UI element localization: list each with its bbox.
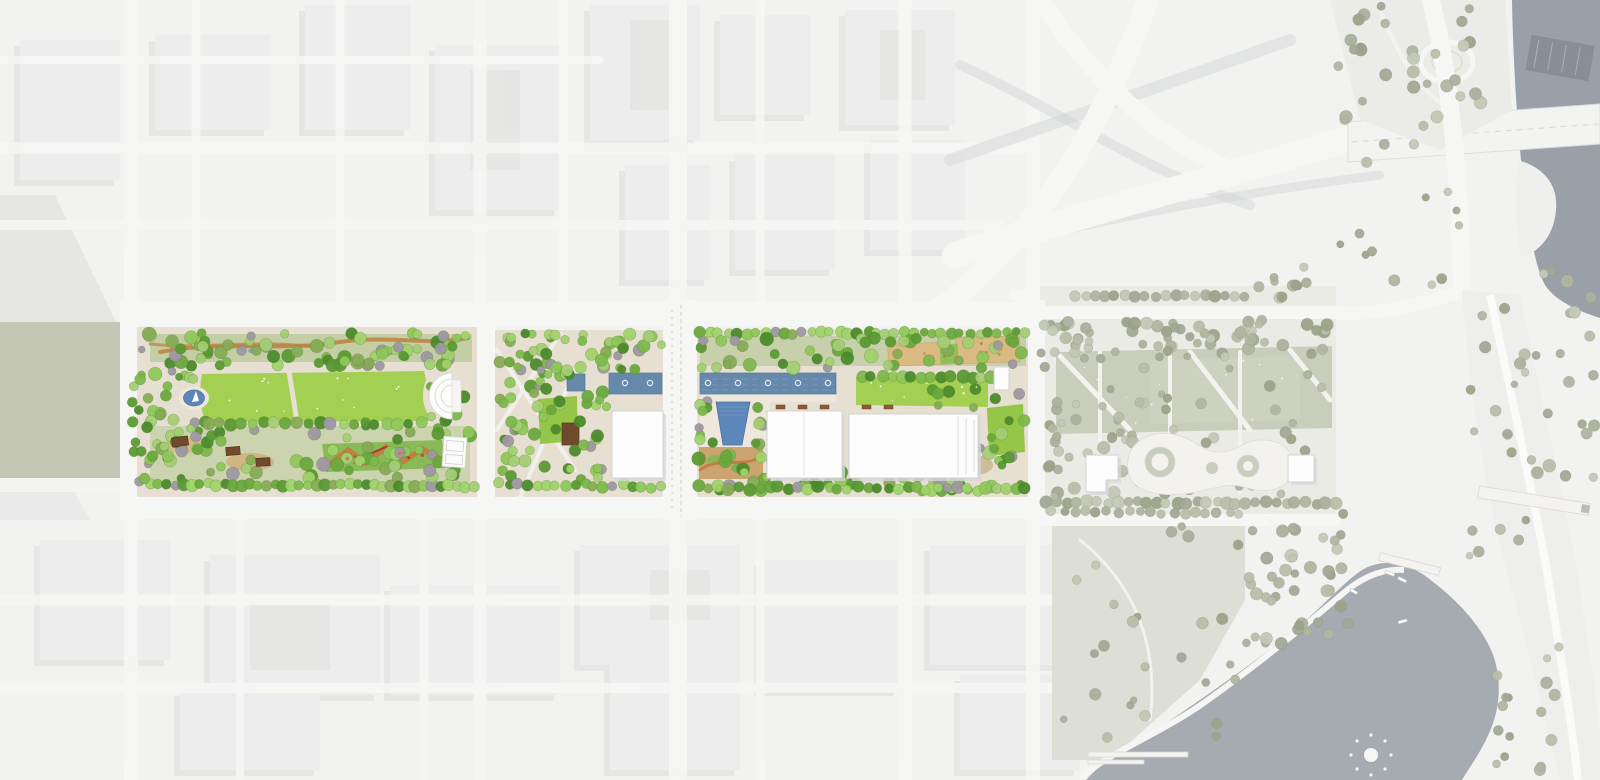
tree — [452, 334, 461, 343]
tree-muted — [1581, 428, 1592, 439]
tree-muted — [1260, 632, 1272, 644]
tree-muted — [1048, 325, 1058, 335]
tree-muted — [1235, 327, 1247, 339]
tree-muted — [1407, 52, 1419, 64]
tree-muted — [1231, 675, 1240, 684]
aerial-plan-stage — [0, 0, 1600, 780]
tree-muted — [1154, 341, 1163, 350]
tree — [405, 427, 415, 437]
play-equipment — [956, 357, 959, 360]
tree — [1015, 347, 1028, 360]
lawn-speck — [926, 383, 927, 384]
tree — [554, 396, 566, 408]
tree-muted — [1466, 552, 1473, 559]
tree-muted — [1260, 496, 1272, 508]
tree-muted — [1367, 247, 1377, 257]
tree-muted — [1080, 354, 1088, 362]
tree — [539, 412, 548, 421]
tree — [127, 397, 137, 407]
tree-muted — [1270, 405, 1280, 415]
tree-muted — [1160, 499, 1170, 509]
lawn-speck — [903, 396, 905, 398]
tree-muted — [1060, 716, 1067, 723]
tree — [292, 346, 303, 357]
tree — [499, 398, 509, 408]
lawn-speck — [1252, 419, 1254, 421]
tree — [175, 344, 186, 355]
tree-muted — [1431, 111, 1443, 123]
tree-muted — [1136, 507, 1144, 515]
tree-muted — [1098, 402, 1106, 410]
hall-east-2 — [849, 414, 978, 478]
tree — [852, 481, 864, 493]
lawn-speck — [263, 378, 265, 380]
tree-muted — [1145, 506, 1156, 517]
west-field — [0, 322, 128, 492]
tree-muted — [1513, 535, 1523, 545]
tree — [643, 330, 655, 342]
tree-muted — [1139, 340, 1147, 348]
tree-muted — [1453, 207, 1461, 215]
tree-muted — [1261, 552, 1273, 564]
tree — [539, 461, 551, 473]
lawn-speck — [1097, 379, 1099, 381]
play-equipment — [923, 352, 925, 354]
tree-muted — [1588, 370, 1598, 380]
tree-muted — [1560, 470, 1571, 481]
tree — [575, 361, 587, 373]
tree-muted — [1522, 516, 1530, 524]
tree-muted — [1531, 467, 1543, 479]
tree-muted — [1128, 317, 1140, 329]
tree-muted — [1082, 292, 1091, 301]
tree-muted — [1294, 621, 1304, 631]
tree — [160, 390, 171, 401]
tree-muted — [1130, 697, 1137, 704]
tree — [893, 349, 903, 359]
tree — [920, 486, 930, 496]
tree — [377, 348, 389, 360]
tree-muted — [1107, 433, 1117, 443]
garden-accent — [402, 452, 404, 454]
tree-muted — [1061, 507, 1069, 515]
tree — [168, 414, 179, 425]
tree-muted — [1291, 570, 1299, 578]
tree-muted — [1126, 507, 1135, 516]
tree-muted — [1114, 412, 1125, 423]
tree — [595, 354, 607, 366]
tree — [699, 336, 708, 345]
tree-muted — [1273, 577, 1284, 588]
tree — [139, 473, 150, 484]
tree-muted — [1338, 509, 1348, 519]
tree — [300, 457, 314, 471]
tree — [899, 336, 910, 347]
tree — [215, 361, 225, 371]
hall-center — [612, 411, 663, 478]
tree — [324, 417, 337, 430]
tree — [574, 416, 586, 428]
tree — [163, 382, 172, 391]
tree-muted — [1300, 263, 1309, 272]
tree-muted — [1361, 157, 1372, 168]
tree — [279, 417, 291, 429]
tree-muted — [1183, 530, 1195, 542]
tree-muted — [1092, 561, 1101, 570]
tree-muted — [1334, 62, 1343, 71]
tree-muted — [1495, 524, 1505, 534]
tree — [160, 442, 169, 451]
tree-muted — [1141, 662, 1150, 671]
tree — [343, 434, 351, 442]
tree-muted — [1096, 354, 1105, 363]
tree — [461, 331, 470, 340]
tree — [1018, 415, 1030, 427]
tree-muted — [1465, 4, 1474, 13]
lawn-speck — [283, 411, 284, 412]
tree-muted — [1543, 459, 1556, 472]
tree — [168, 367, 176, 375]
tree — [987, 433, 995, 441]
tree — [502, 435, 514, 447]
tree-muted — [1157, 510, 1166, 519]
tree-muted — [1201, 438, 1211, 448]
tree — [446, 469, 458, 481]
tree — [416, 417, 427, 428]
tree — [618, 365, 627, 374]
tree-muted — [1180, 291, 1189, 300]
tree — [525, 446, 534, 455]
tree-muted — [1353, 14, 1365, 26]
tree-muted — [1532, 351, 1540, 359]
tree — [246, 455, 256, 465]
tree — [393, 342, 403, 352]
tree — [744, 484, 757, 497]
tree — [280, 329, 289, 338]
tree-muted — [1226, 661, 1234, 669]
tree — [136, 446, 146, 456]
tree — [905, 371, 916, 382]
tree — [161, 479, 171, 489]
lawn-speck — [870, 382, 872, 384]
tree — [369, 420, 379, 430]
tree — [1020, 328, 1030, 338]
tree-muted — [1277, 292, 1287, 302]
tree — [508, 446, 518, 456]
tree-muted — [1277, 490, 1285, 498]
tree — [976, 363, 987, 374]
tree — [529, 346, 538, 355]
tree-muted — [1073, 334, 1083, 344]
tree — [824, 327, 833, 336]
tree — [364, 358, 375, 369]
tree — [331, 458, 344, 471]
tree — [196, 354, 206, 364]
tree-muted — [1250, 588, 1262, 600]
tree-muted — [1072, 575, 1081, 584]
tree-muted — [1317, 344, 1328, 355]
lawn-speck — [317, 408, 319, 410]
tree — [1001, 483, 1012, 494]
tree — [494, 356, 506, 368]
tree — [442, 359, 452, 369]
tree-muted — [1280, 427, 1292, 439]
tree — [235, 418, 246, 429]
tree — [990, 444, 999, 453]
tree-muted — [1044, 460, 1055, 471]
tree — [191, 431, 202, 442]
tree — [522, 480, 533, 491]
tree-muted — [1536, 707, 1546, 717]
tree — [1009, 337, 1019, 347]
tree — [516, 350, 525, 359]
play-equipment — [999, 347, 1003, 351]
garden-accent — [346, 457, 349, 460]
tree — [716, 335, 727, 346]
garden-accent — [398, 452, 401, 455]
north-street — [128, 302, 1035, 326]
tree — [566, 465, 574, 473]
tree — [751, 328, 760, 337]
tree — [920, 328, 928, 336]
tree — [514, 363, 522, 371]
tree-muted — [1419, 121, 1429, 131]
tree — [693, 479, 705, 491]
play-equipment — [931, 355, 934, 358]
tree — [943, 386, 955, 398]
tree-muted — [1114, 508, 1124, 518]
tree — [944, 370, 956, 382]
tree-muted — [1377, 2, 1385, 10]
tree — [197, 341, 208, 352]
tree — [969, 404, 977, 412]
tree-muted — [1534, 764, 1546, 776]
tree-muted — [1170, 508, 1180, 518]
tree-muted — [1549, 689, 1561, 701]
tree — [551, 424, 561, 434]
tree-muted — [1112, 496, 1125, 509]
tree — [186, 424, 194, 432]
tree — [252, 481, 262, 491]
tree-muted — [1455, 222, 1463, 230]
tree-muted — [1336, 563, 1347, 574]
tree — [587, 481, 597, 491]
tree — [424, 464, 436, 476]
tree — [148, 367, 162, 381]
tree-muted — [1303, 370, 1312, 379]
tree — [153, 479, 163, 489]
tree-muted — [1469, 88, 1481, 100]
tree-muted — [1260, 338, 1268, 346]
tree — [595, 396, 604, 405]
tree-muted — [1456, 92, 1466, 102]
tree-muted — [1407, 81, 1420, 94]
tree-muted — [1547, 266, 1556, 275]
tree — [708, 438, 718, 448]
tree-muted — [1102, 732, 1112, 742]
tree-muted — [1409, 140, 1419, 150]
tree — [932, 388, 944, 400]
tree — [415, 446, 423, 454]
tree — [216, 436, 227, 447]
tree-muted — [1289, 585, 1299, 595]
tree-muted — [1321, 585, 1333, 597]
tree — [697, 363, 706, 372]
tree-muted — [1140, 710, 1151, 721]
tree-muted — [1277, 339, 1289, 351]
tree — [992, 329, 1002, 339]
tree-muted — [1431, 49, 1440, 58]
tree — [864, 349, 878, 363]
tree — [934, 401, 942, 409]
tree-muted — [1300, 446, 1310, 456]
tree-muted — [1240, 292, 1249, 301]
tree — [294, 481, 304, 491]
lawn-speck — [976, 386, 978, 388]
tree — [734, 482, 744, 492]
tree — [743, 358, 756, 371]
lawn-speck — [336, 377, 338, 379]
tree-muted — [1065, 453, 1074, 462]
tree — [540, 383, 552, 395]
tree-muted — [1243, 316, 1255, 328]
tree — [911, 333, 921, 343]
tree-muted — [1054, 446, 1064, 456]
tree — [760, 332, 774, 346]
tree-muted — [1072, 400, 1080, 408]
tree-muted — [1037, 349, 1046, 358]
tree — [825, 357, 834, 366]
tree — [345, 466, 354, 475]
lawn-speck — [961, 386, 963, 388]
tree — [630, 364, 640, 374]
tree — [353, 479, 362, 488]
tree — [657, 341, 665, 349]
tree-muted — [1163, 346, 1173, 356]
tree — [447, 342, 457, 352]
tree-muted — [1478, 311, 1487, 320]
tree — [937, 336, 950, 349]
tree-muted — [1479, 341, 1491, 353]
lawn-speck — [892, 400, 893, 401]
tree-muted — [1166, 526, 1177, 537]
tree-muted — [1139, 291, 1149, 301]
tree — [519, 455, 531, 467]
tree — [792, 482, 803, 493]
tree — [511, 478, 522, 489]
tree-muted — [1324, 629, 1334, 639]
tree — [943, 483, 952, 492]
tree-muted — [1226, 509, 1234, 517]
tree — [578, 336, 587, 345]
tree-muted — [1111, 348, 1119, 356]
lawn-speck — [1243, 360, 1245, 362]
tree-muted — [1321, 319, 1333, 331]
tree-muted — [1585, 331, 1595, 341]
tree — [339, 420, 348, 429]
tree-muted — [1428, 281, 1436, 289]
tree — [885, 337, 896, 348]
tree — [354, 332, 366, 344]
tree — [463, 426, 475, 438]
tree — [582, 390, 594, 402]
tree — [505, 377, 516, 388]
tree — [982, 327, 992, 337]
tree-muted — [1212, 732, 1221, 741]
tree — [469, 481, 480, 492]
tree-muted — [1468, 526, 1478, 536]
tree — [268, 417, 279, 428]
tree-muted — [1202, 678, 1210, 686]
tree-muted — [1323, 565, 1335, 577]
tree-muted — [1200, 497, 1212, 509]
tree-muted — [1458, 40, 1469, 51]
tree-muted — [1216, 613, 1228, 625]
tree — [646, 483, 656, 493]
tree — [155, 410, 165, 420]
central-boulevard — [663, 300, 697, 520]
riverfront-building-east — [1288, 455, 1314, 482]
tree-muted — [1330, 536, 1340, 546]
tree-muted — [1127, 616, 1139, 628]
tree-muted — [1337, 241, 1344, 248]
tree-muted — [1466, 385, 1475, 394]
tree-muted — [1289, 554, 1297, 562]
tree — [404, 419, 413, 428]
tree-muted — [1211, 508, 1221, 518]
sport-court — [442, 436, 467, 468]
tree-muted — [1177, 653, 1187, 663]
tree-muted — [1107, 385, 1115, 393]
tree — [389, 460, 401, 472]
tree-muted — [1589, 473, 1598, 482]
lawn-speck — [262, 380, 264, 382]
tree — [327, 445, 338, 456]
tree-muted — [1340, 110, 1353, 123]
tree — [578, 440, 589, 451]
tree — [507, 333, 516, 342]
tree-muted — [1300, 496, 1311, 507]
tree-muted — [1276, 525, 1289, 538]
lawn-speck — [256, 410, 258, 412]
garden-accent — [353, 462, 355, 464]
tree — [424, 359, 435, 370]
tree — [1005, 416, 1014, 425]
tree — [722, 483, 734, 495]
tree — [925, 372, 936, 383]
tree-muted — [1052, 397, 1062, 407]
tree-muted — [1135, 398, 1144, 407]
park-building-small — [994, 367, 1009, 390]
tree — [138, 346, 145, 353]
tree-muted — [1109, 291, 1119, 301]
tree-muted — [1423, 80, 1431, 88]
lawn-speck — [1084, 367, 1085, 368]
tree-muted — [1091, 496, 1101, 506]
lake-pier — [1088, 752, 1188, 757]
tree-muted — [1090, 649, 1098, 657]
tree — [561, 335, 570, 344]
tree-muted — [1568, 306, 1580, 318]
tree — [308, 427, 321, 440]
tree-muted — [1280, 564, 1292, 576]
tree — [506, 416, 518, 428]
tree — [561, 480, 572, 491]
play-equipment — [981, 342, 983, 344]
tree — [147, 451, 158, 462]
tree — [1014, 388, 1025, 399]
tree — [435, 343, 447, 355]
